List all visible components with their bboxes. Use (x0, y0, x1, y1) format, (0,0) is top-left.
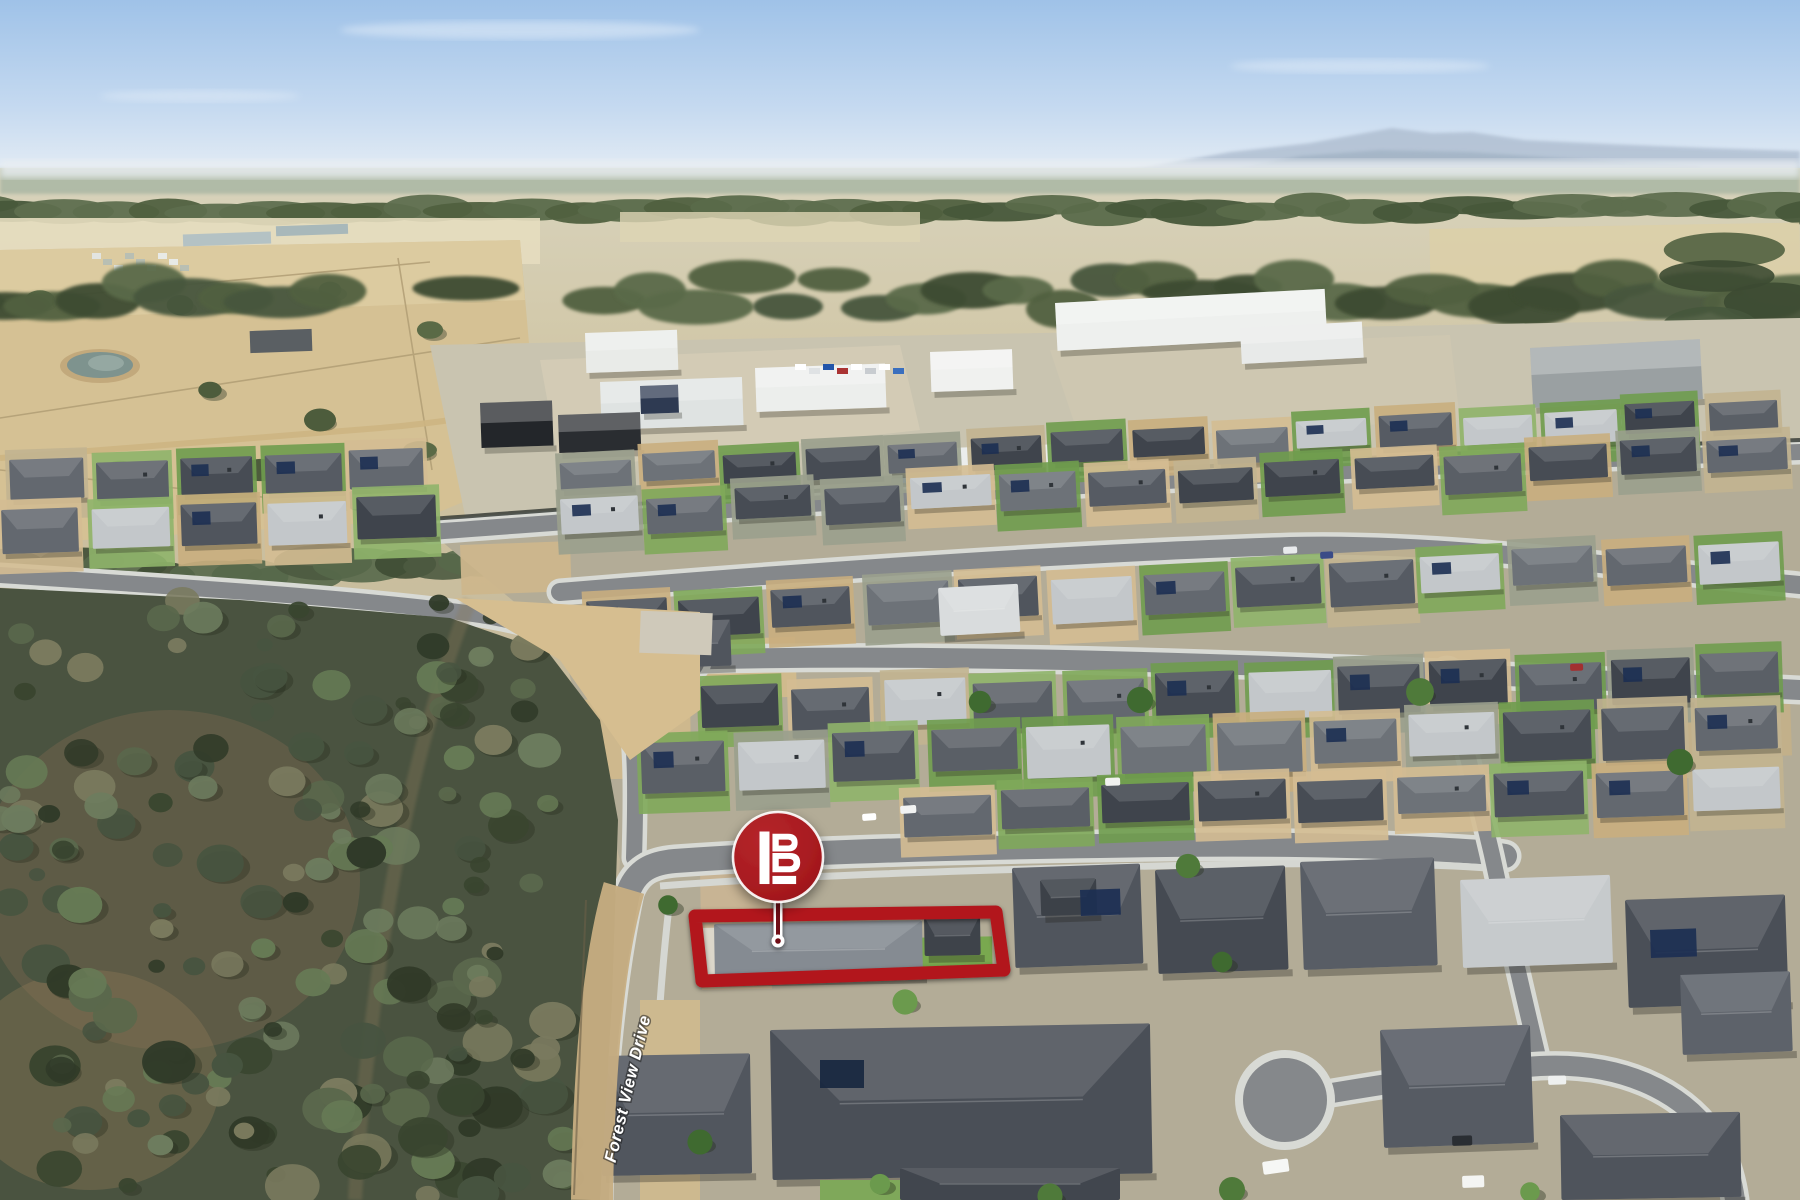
bush-tree (436, 662, 461, 682)
solar-panels (191, 464, 209, 476)
bush-tree (510, 678, 535, 698)
bush-tree (188, 776, 217, 800)
forest-clump (753, 293, 823, 319)
house (1460, 875, 1617, 975)
bush-tree (53, 1118, 72, 1133)
bush-tree (46, 1057, 77, 1081)
car (1570, 664, 1583, 671)
bush-tree (206, 1087, 231, 1107)
bush-tree (321, 930, 343, 948)
bush-tree (72, 1133, 98, 1154)
street-tree (658, 895, 678, 915)
forest-clump (688, 260, 796, 294)
bush-tree (363, 908, 393, 932)
solar-panels (1390, 420, 1408, 431)
bush-tree (253, 663, 288, 691)
roof-vent (1384, 574, 1388, 578)
bush-tree (159, 1094, 186, 1116)
bush-tree (29, 868, 45, 881)
house (1560, 1112, 1746, 1200)
roof-vent (963, 485, 967, 489)
bush-tree (119, 1178, 137, 1193)
farm-shed (158, 253, 167, 259)
bush-tree (486, 947, 503, 961)
bush-tree (212, 1053, 243, 1078)
bush-tree (67, 653, 103, 682)
backyard-shed (924, 915, 985, 963)
bush-tree (0, 786, 20, 803)
truck (809, 368, 820, 374)
bush-tree (321, 1100, 362, 1133)
street-tree (1667, 749, 1693, 775)
bush-tree (347, 837, 387, 869)
farm-shed (125, 253, 134, 259)
aerial-photograph: B Forest View Drive (0, 0, 1800, 1200)
forest-clump (290, 274, 367, 309)
truck (879, 364, 890, 370)
truck (865, 368, 876, 374)
bush-tree (251, 938, 275, 958)
bush-tree (268, 766, 305, 796)
bush-tree (153, 843, 183, 867)
bush-tree (350, 801, 370, 817)
bush-tree (52, 841, 75, 859)
street-tree (1127, 687, 1153, 713)
bush-tree (395, 697, 411, 710)
bush-tree (397, 906, 439, 939)
bush-tree (494, 1163, 531, 1193)
bush-tree (398, 1117, 448, 1157)
bush-tree (464, 877, 485, 894)
bush-tree (469, 976, 496, 998)
solar-panels (782, 595, 802, 608)
roof-vent (1313, 470, 1317, 474)
solar-panels (1623, 667, 1642, 682)
solar-panels (192, 511, 211, 525)
bush-tree (238, 997, 266, 1019)
bush-tree (383, 1036, 433, 1076)
bush-tree (340, 1022, 385, 1058)
car (1452, 1135, 1472, 1146)
bush-tree (148, 1135, 174, 1156)
solar-panels (360, 456, 378, 469)
bush-tree (150, 919, 174, 938)
bush-tree (429, 595, 449, 611)
shed-roof-highlight (558, 412, 641, 432)
roof-vent (1017, 446, 1021, 450)
shed-roof-highlight (585, 330, 678, 351)
bush-tree (479, 792, 511, 818)
bush-tree (474, 1010, 493, 1025)
roof-vent (1139, 480, 1143, 484)
bush-tree (537, 795, 558, 812)
bush-tree (439, 787, 457, 801)
solar-panels (981, 443, 998, 454)
street-tree (870, 1174, 890, 1194)
solar-panels (1156, 581, 1176, 595)
bush-tree (406, 1071, 429, 1090)
bush-tree (437, 1003, 471, 1030)
bush-tree (84, 792, 118, 819)
bush-tree (8, 623, 34, 644)
bush-tree (442, 898, 464, 915)
solar-panels (1441, 669, 1460, 684)
bush-tree (0, 833, 34, 861)
bush-tree (6, 755, 48, 789)
bush-tree (250, 703, 274, 722)
bush-tree (387, 966, 432, 1002)
bush-tree (518, 733, 561, 768)
farm-shed (103, 259, 112, 265)
bush-tree (193, 734, 229, 762)
white-roof-house (938, 584, 1025, 643)
roof-vent (227, 468, 231, 472)
bush-tree (288, 732, 324, 761)
car (862, 813, 876, 821)
bush-tree (288, 602, 309, 619)
bush-tree (305, 858, 333, 881)
car (900, 805, 917, 814)
roof-vent (1494, 465, 1498, 469)
large-foreground-house (770, 1023, 1157, 1187)
solar-panels (1707, 715, 1727, 729)
roof-vent (1465, 725, 1469, 729)
forest-clump (412, 276, 519, 300)
bush-tree (338, 1145, 382, 1180)
street-tree (892, 989, 917, 1014)
farm-shed (180, 265, 189, 271)
bush-tree (394, 708, 427, 735)
forest-clump (798, 268, 870, 292)
bush-tree (470, 857, 490, 873)
bush-tree (257, 638, 273, 651)
solar-panels (276, 461, 295, 474)
bush-tree (283, 864, 305, 881)
bush-tree (352, 695, 388, 724)
solar-panels (1555, 417, 1573, 428)
roof-vent (1081, 741, 1085, 745)
bush-tree (211, 951, 243, 977)
rural-house (250, 329, 313, 353)
bush-tree (64, 739, 98, 766)
farm-shed (169, 259, 178, 265)
solar-panels (820, 1060, 864, 1088)
bush-tree (283, 892, 309, 913)
roof-vent (1049, 483, 1053, 487)
roof-vent (822, 599, 826, 603)
solar-panels (1350, 674, 1370, 690)
shed-roof-highlight (640, 385, 678, 399)
bush-tree (240, 885, 282, 918)
roof-vent (842, 702, 846, 706)
bush-tree (294, 798, 322, 820)
street-tree (1176, 854, 1200, 878)
roof-vent (1560, 725, 1564, 729)
forest-clump (638, 290, 753, 325)
car (1105, 777, 1120, 786)
solar-panels (1167, 681, 1187, 696)
roof-vent (794, 755, 798, 759)
house (900, 1168, 1124, 1200)
tree (198, 382, 222, 398)
street-tree (687, 1129, 712, 1154)
solar-panels (572, 504, 591, 516)
solar-panels (1306, 425, 1323, 435)
house-shadow (929, 955, 985, 963)
solar-panels (653, 751, 674, 768)
truck (893, 368, 904, 374)
bush-tree (345, 929, 388, 963)
bush-tree (436, 916, 467, 941)
truck (837, 368, 848, 374)
brand-logo-letter: B (775, 854, 782, 865)
bush-tree (175, 756, 202, 778)
bush-tree (475, 725, 513, 755)
roof-vent (143, 473, 147, 477)
bush-tree (344, 741, 374, 765)
bush-tree (458, 1119, 480, 1137)
bush-tree (448, 1046, 468, 1062)
bush-tree (332, 829, 351, 844)
roof-vent (937, 692, 941, 696)
bush-tree (38, 805, 60, 823)
roof-vent (1117, 694, 1121, 698)
bush-tree (14, 683, 36, 700)
bush-tree (267, 615, 295, 638)
street-tree (969, 691, 992, 714)
tree (417, 321, 443, 339)
bush-tree (37, 1151, 83, 1187)
roof-vent (1255, 791, 1259, 795)
shed-roof-highlight (480, 400, 553, 423)
bush-tree (264, 1022, 282, 1037)
car (1462, 1175, 1484, 1188)
solar-panels (1718, 445, 1738, 456)
bush-tree (147, 605, 180, 631)
roof-ridge (934, 935, 970, 936)
bush-tree (360, 1084, 385, 1104)
solar-panels (1326, 728, 1346, 742)
roof-vent (770, 461, 774, 465)
tree (304, 409, 336, 432)
solar-panels (898, 449, 915, 459)
solar-panels (1650, 928, 1697, 958)
solar-panels (922, 482, 942, 493)
roof-vent (1291, 577, 1295, 581)
roof-vent (695, 757, 699, 761)
truck (823, 364, 834, 370)
shed-roof-highlight (930, 349, 1013, 370)
bush-tree (183, 602, 223, 634)
bushland (0, 587, 713, 1200)
roof-vent (1748, 719, 1752, 723)
bush-tree (295, 968, 330, 996)
solar-panels (1080, 889, 1121, 916)
bush-tree (102, 1086, 134, 1112)
bush-tree (444, 745, 475, 769)
solar-panels (1432, 562, 1452, 575)
bush-tree (234, 1123, 255, 1139)
car (1283, 546, 1297, 554)
bush-tree (127, 1109, 150, 1127)
bush-tree (312, 670, 350, 700)
solar-panels (658, 504, 677, 516)
bush-tree (148, 793, 172, 812)
solar-panels (1609, 780, 1630, 795)
bush-tree (469, 647, 491, 664)
roof-vent (1455, 786, 1459, 790)
roof-vent (784, 495, 788, 499)
house (1380, 1025, 1538, 1155)
bush-tree (511, 700, 539, 722)
street-tree (1406, 678, 1434, 706)
bush-tree (519, 874, 543, 893)
truck (795, 364, 806, 370)
farm-shed (92, 253, 101, 259)
bush-tree (93, 998, 138, 1034)
truck (851, 364, 862, 370)
bush-tree (153, 903, 171, 918)
bush-tree (142, 1041, 195, 1084)
solar-panels (1011, 480, 1030, 493)
bush-tree (68, 968, 106, 999)
bush-tree (57, 887, 102, 923)
bush-tree (183, 957, 205, 975)
solar-panels (844, 741, 864, 757)
roof-vent (611, 507, 615, 511)
car (1548, 1075, 1566, 1085)
bush-tree (529, 1002, 576, 1040)
bush-tree (197, 844, 244, 882)
bush-tree (29, 639, 61, 665)
solar-panels (1631, 445, 1650, 457)
bush-tree (1, 805, 36, 833)
solar-panels (1710, 551, 1730, 565)
house (1680, 971, 1797, 1062)
bush-tree (365, 774, 402, 804)
culdesac-bulb (1239, 1054, 1331, 1146)
roof-vent (1480, 673, 1484, 677)
roof-vent (319, 514, 323, 518)
car (1320, 551, 1333, 559)
bush-tree (148, 960, 165, 973)
street-tree (1212, 952, 1233, 973)
bush-tree (417, 633, 450, 659)
solar-panels (1507, 780, 1529, 795)
bush-tree (168, 638, 187, 653)
bush-tree (440, 703, 470, 727)
roof-vent (1573, 677, 1577, 681)
house (1300, 857, 1442, 977)
bush-tree (510, 1049, 534, 1069)
solar-panels (1635, 408, 1652, 418)
bush-tree (117, 747, 152, 775)
brand-logo-marker: B (733, 812, 823, 902)
bush-tree (437, 1078, 484, 1116)
roof-vent (1207, 685, 1211, 689)
